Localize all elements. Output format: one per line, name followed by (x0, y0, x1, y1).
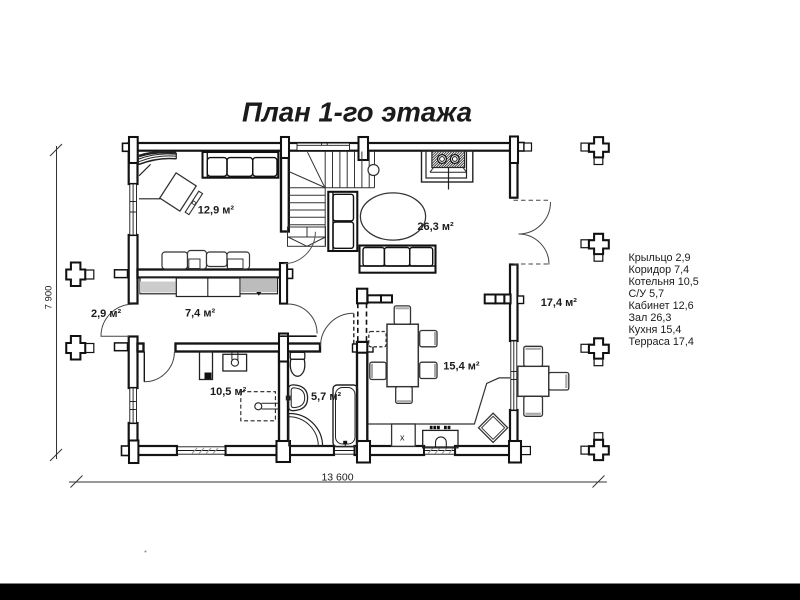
svg-text:Коридор 7,4: Коридор 7,4 (629, 264, 690, 276)
svg-text:17,4 м²: 17,4 м² (541, 297, 578, 309)
svg-text:26,3 м²: 26,3 м² (417, 221, 454, 233)
svg-text:С/У 5,7: С/У 5,7 (629, 288, 665, 300)
svg-text:7 900: 7 900 (44, 286, 55, 310)
svg-text:15,4 м²: 15,4 м² (443, 361, 480, 373)
svg-text:10,5 м²: 10,5 м² (210, 386, 247, 398)
svg-text:Терраса 17,4: Терраса 17,4 (629, 336, 694, 348)
svg-text:7,4 м²: 7,4 м² (185, 308, 215, 320)
svg-text:x: x (400, 433, 405, 443)
svg-text:Кабинет 12,6: Кабинет 12,6 (629, 300, 694, 312)
svg-text:План 1-го этажа: План 1-го этажа (242, 97, 472, 128)
svg-text:13 600: 13 600 (321, 472, 353, 484)
svg-text:Зал 26,3: Зал 26,3 (629, 312, 672, 324)
svg-text:Котельня 10,5: Котельня 10,5 (629, 276, 699, 288)
svg-text:Крыльцо 2,9: Крыльцо 2,9 (629, 252, 691, 264)
svg-text:12,9 м²: 12,9 м² (198, 205, 235, 217)
svg-text:Кухня 15,4: Кухня 15,4 (629, 324, 682, 336)
svg-text:2,9 м²: 2,9 м² (91, 308, 121, 320)
svg-text:5,7 м²: 5,7 м² (311, 391, 341, 403)
